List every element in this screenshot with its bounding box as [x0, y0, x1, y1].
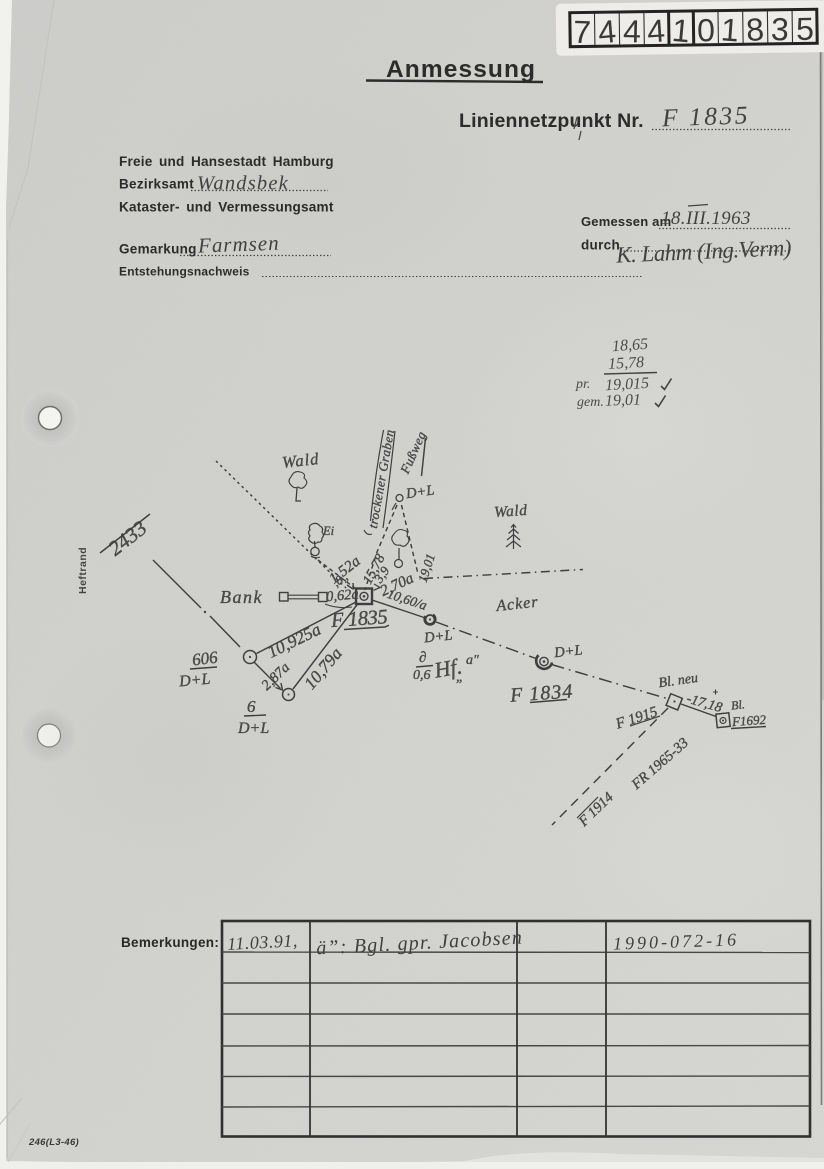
svg-text:11.03.91,: 11.03.91, [227, 930, 299, 954]
svg-text:Bemerkungen:: Bemerkungen: [121, 935, 219, 950]
